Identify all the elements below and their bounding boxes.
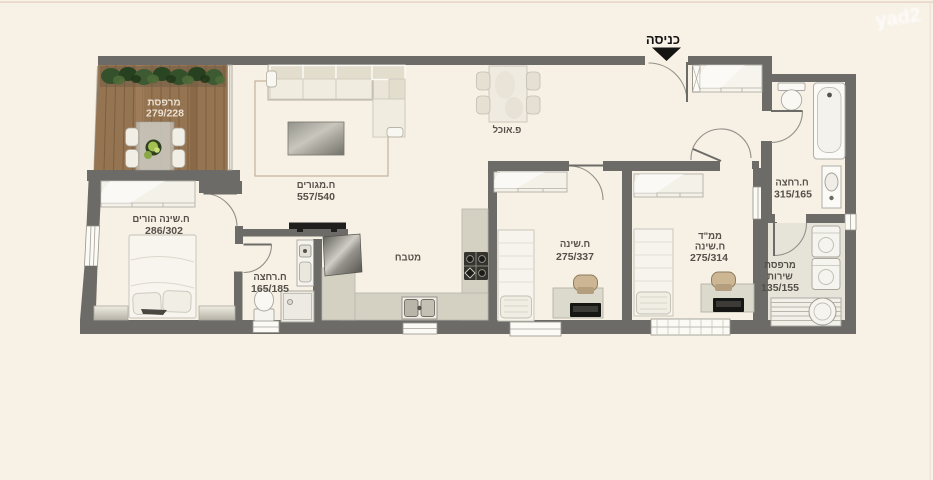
svg-text:מרפסת: מרפסת (764, 260, 796, 271)
svg-text:ממ"ד: ממ"ד (698, 231, 722, 242)
svg-text:ח.שינה הורים: ח.שינה הורים (132, 214, 189, 225)
svg-text:ח.שינה: ח.שינה (695, 242, 725, 253)
svg-text:ח.מגורים: ח.מגורים (297, 180, 336, 191)
svg-text:165/185: 165/185 (251, 283, 289, 295)
svg-text:279/228: 279/228 (146, 108, 184, 120)
svg-text:שירות: שירות (767, 272, 793, 283)
svg-text:275/337: 275/337 (556, 251, 594, 263)
svg-text:275/314: 275/314 (690, 252, 728, 264)
svg-text:315/165: 315/165 (774, 189, 812, 201)
svg-text:ח.רחצה: ח.רחצה (775, 178, 808, 189)
svg-text:כניסה: כניסה (646, 32, 680, 47)
svg-text:מטבח: מטבח (395, 253, 421, 264)
svg-text:ח.שינה: ח.שינה (560, 239, 590, 250)
svg-text:557/540: 557/540 (297, 191, 335, 203)
svg-text:135/155: 135/155 (761, 282, 799, 294)
svg-text:286/302: 286/302 (145, 225, 183, 237)
svg-text:פ.אוכל: פ.אוכל (493, 125, 522, 136)
svg-text:ח.רחצה: ח.רחצה (253, 272, 286, 283)
